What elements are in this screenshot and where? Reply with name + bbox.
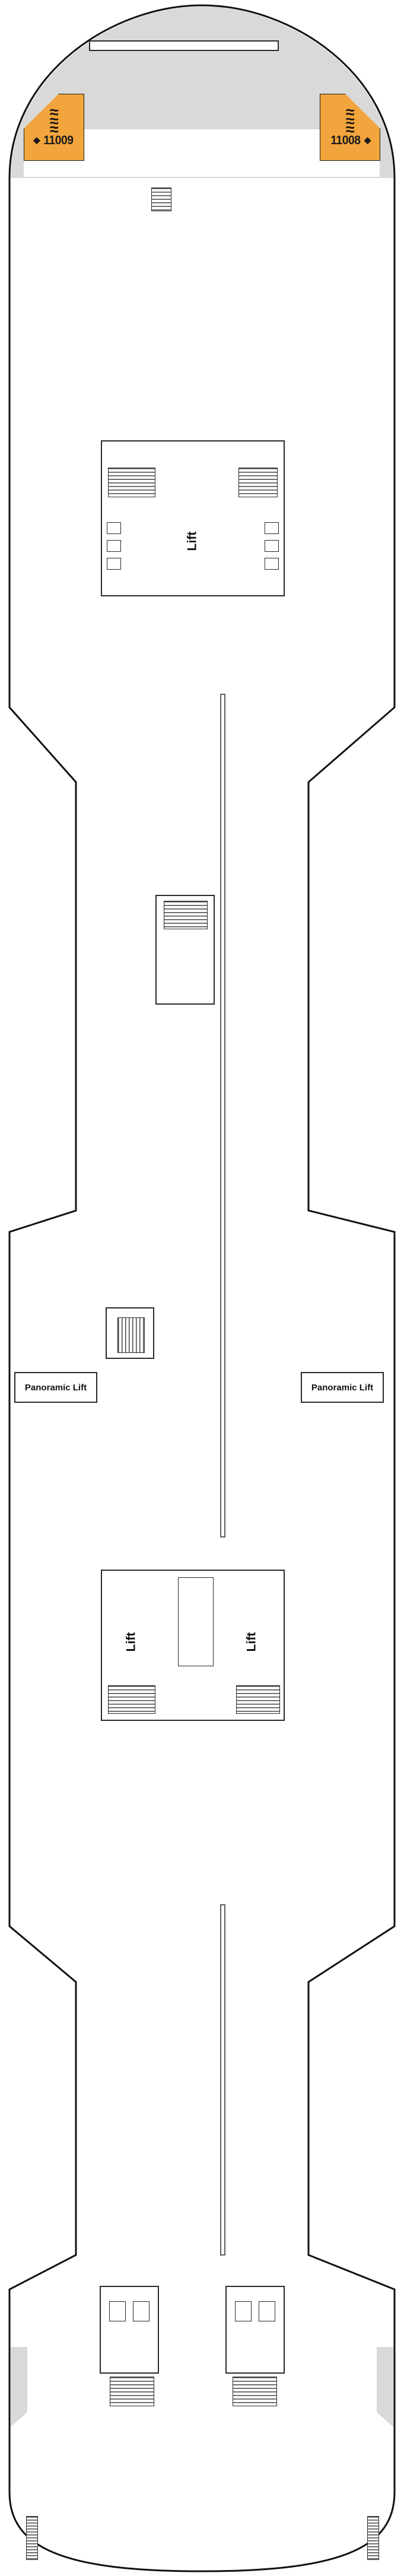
- lift-car: [235, 2301, 252, 2321]
- lower-lobby-stairs-left: [108, 1685, 155, 1714]
- lift-car: [259, 2301, 275, 2321]
- stern-lift-lobby-right: [225, 2286, 285, 2374]
- whirlpool-icon: ≈≈≈: [346, 108, 354, 135]
- lift-car: [109, 2301, 126, 2321]
- stern-edge-stairs-right: [367, 2516, 379, 2560]
- upper-lobby-stairs-right: [238, 468, 278, 497]
- panoramic-lift-label: Panoramic Lift: [311, 1383, 373, 1393]
- inner-left-stairs: [117, 1317, 145, 1353]
- whirlpool-icon: ≈≈≈: [50, 108, 58, 135]
- upper-lift-label: Lift: [185, 532, 199, 551]
- lift-car: [265, 558, 279, 570]
- lift-car: [133, 2301, 149, 2321]
- panoramic-lift-right: Panoramic Lift: [301, 1372, 384, 1403]
- stern-lift-lobby-left: [100, 2286, 159, 2374]
- lower-lift-label-right: Lift: [244, 1632, 259, 1652]
- lift-car: [107, 540, 121, 552]
- stern-stairs-right: [233, 2377, 277, 2406]
- lower-lift-label-left: Lift: [124, 1632, 138, 1652]
- bow-corridor: [89, 40, 279, 51]
- stern-stairs-left: [110, 2377, 154, 2406]
- hull-outline: [0, 0, 404, 2576]
- lift-car: [107, 522, 121, 534]
- stern-edge-stairs-left: [26, 2516, 38, 2560]
- mid-stairs: [164, 901, 208, 929]
- deck-plan: Lift Panoramic Lift Panoramic Lift Lift …: [0, 0, 404, 2576]
- panoramic-lift-left: Panoramic Lift: [14, 1372, 97, 1403]
- upper-lobby-stairs-left: [108, 468, 155, 497]
- panoramic-lift-label: Panoramic Lift: [25, 1383, 87, 1393]
- lift-car: [265, 540, 279, 552]
- lift-car: [107, 558, 121, 570]
- lift-car: [265, 522, 279, 534]
- lower-lobby-stairs-right: [236, 1685, 280, 1714]
- upper-lift-lobby: [101, 440, 285, 596]
- lower-lobby-shaft: [178, 1577, 214, 1666]
- bow-stairs: [151, 188, 171, 211]
